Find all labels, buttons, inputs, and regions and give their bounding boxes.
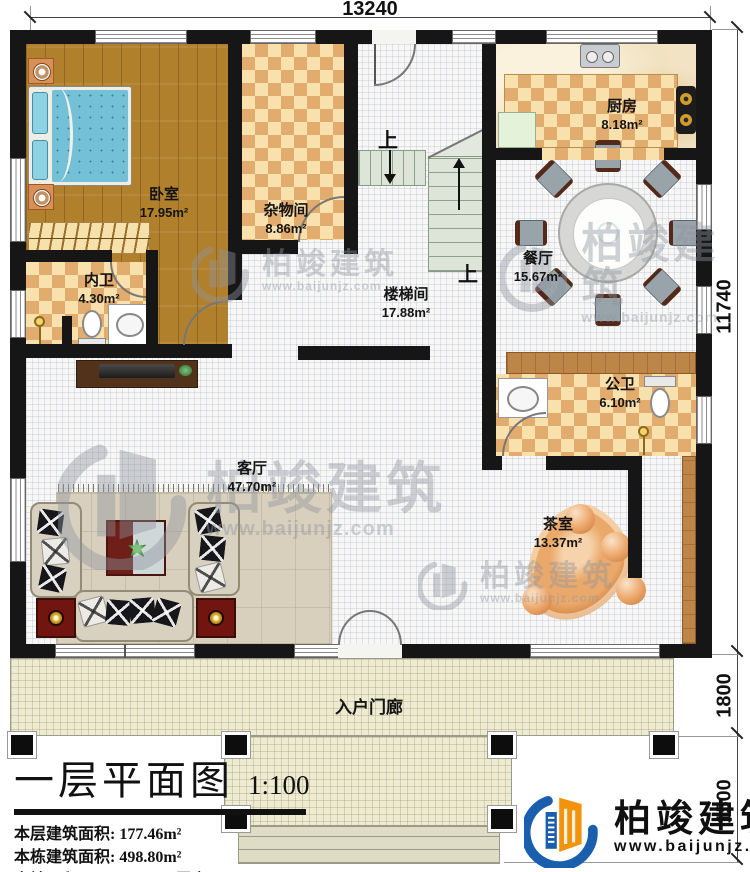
room-label-public-bath: 公卫 6.10m² (565, 376, 675, 411)
info-value: 498.80m² (119, 849, 181, 866)
stair-up-label-2: 上 (458, 258, 478, 287)
door-leaf-top-entry (374, 44, 376, 84)
room-name: 楼梯间 (351, 286, 461, 305)
porch-column (488, 732, 516, 758)
wall-center-vertical (482, 30, 496, 468)
stair-arrow-up-line (458, 168, 460, 210)
company-logo-block: 柏竣建筑 www.baijunjz.com (524, 788, 750, 868)
sofa-cushion (105, 599, 132, 626)
wall-private-bath-top (26, 250, 112, 262)
info-line-1: 本层建筑面积: 177.46m² (14, 823, 310, 846)
window-bedroom-top (95, 30, 187, 44)
stove-burner (680, 114, 692, 126)
room-area: 8.18m² (567, 117, 677, 133)
tv-plant (179, 365, 192, 376)
room-label-private-bath: 内卫 4.30m² (44, 272, 154, 307)
info-label: 本层建筑面积: (14, 826, 115, 843)
bed-pillow (32, 140, 48, 180)
wall-bedroom-right (228, 30, 242, 300)
end-table (36, 598, 76, 638)
room-name: 入户门廊 (309, 697, 429, 718)
room-name: 杂物间 (231, 202, 341, 221)
wardrobe-rail (29, 238, 151, 239)
end-table-lamp (210, 612, 222, 624)
nightstand-lamp (33, 63, 51, 81)
coffee-table (106, 520, 166, 576)
room-area: 6.10m² (565, 395, 675, 411)
room-name: 卧室 (109, 186, 219, 205)
sink-basin (507, 386, 539, 412)
sink-basin (116, 313, 144, 337)
floor-lamp-stem (39, 327, 41, 345)
tea-room-side-deck (682, 456, 696, 644)
door-gap-main-entry (338, 644, 402, 658)
public-bath-counter-wall (506, 352, 696, 374)
nightstand-lamp (33, 189, 51, 207)
wall-kitchen-divider-right (664, 148, 696, 160)
wall-private-bath-stub (62, 316, 72, 344)
window-dining-right-2 (696, 286, 712, 334)
window-stairhall-top (452, 30, 496, 44)
end-table-lamp (50, 612, 62, 624)
tea-stool (522, 585, 552, 615)
company-name: 柏竣建筑 (614, 800, 750, 839)
floor-lamp-stem (643, 437, 645, 455)
room-area: 4.30m² (44, 291, 154, 307)
title-underline (14, 809, 306, 815)
room-name: 餐厅 (483, 250, 593, 269)
room-label-kitchen: 厨房 8.18m² (567, 98, 677, 133)
plan-scale: 1:100 (248, 770, 310, 801)
tv-cabinet (76, 360, 198, 388)
kitchen-opening (542, 148, 664, 160)
window-mullion (124, 644, 126, 658)
title-row: 一层平面图 1:100 (14, 748, 310, 806)
room-area: 17.95m² (109, 205, 219, 221)
bed-pillow (32, 92, 48, 134)
wall-storage-bottom (242, 240, 298, 254)
fridge (498, 112, 536, 148)
window-public-bath-right (696, 396, 712, 444)
floor-lamp (34, 316, 45, 327)
room-name: 茶室 (503, 516, 613, 535)
stair-up-label-1: 上 (378, 124, 398, 153)
window-storage-top (250, 30, 316, 44)
room-area: 8.86m² (231, 221, 341, 237)
wall-outer-right (696, 30, 712, 658)
bed-sheet-curve (44, 88, 73, 182)
toilet-bowl (82, 310, 102, 338)
sink-basin (586, 51, 598, 63)
room-label-stairwell: 楼梯间 17.88m² (351, 286, 461, 321)
room-area: 13.37m² (503, 535, 613, 551)
window-hall-bottom (294, 644, 342, 658)
wall-hall-divider (298, 346, 430, 360)
title-block: 一层平面图 1:100 本层建筑面积: 177.46m² 本栋建筑面积: 498… (14, 748, 310, 872)
door-gap-top-entry (372, 30, 416, 44)
dimension-right-mid: 1800 (714, 668, 737, 724)
sofa-cushion (41, 537, 71, 567)
room-area: 47.70m² (197, 479, 307, 495)
wall-storage-right (344, 30, 358, 254)
sofa-cushion (199, 535, 226, 562)
info-line-2: 本栋建筑面积: 498.80m² (14, 846, 310, 869)
info-lines: 本层建筑面积: 177.46m² 本栋建筑面积: 498.80m² 占地面积: … (14, 823, 310, 872)
window-tea-bottom (530, 644, 660, 658)
stair-arrow-down-head (384, 174, 396, 184)
floor-plan-canvas: 13240 11740 1800 1500 (0, 0, 750, 872)
window-living-left (10, 478, 26, 562)
room-name: 客厅 (197, 460, 307, 479)
room-area: 15.67m² (483, 269, 593, 285)
stair-arrow-up-head (453, 158, 465, 168)
window-private-bath-left (10, 290, 26, 338)
dining-table-center (597, 222, 619, 244)
wall-public-bath-bottom-left (482, 456, 502, 470)
dining-chair (515, 220, 547, 246)
tv-screen (99, 364, 175, 378)
room-name: 厨房 (567, 98, 677, 117)
room-label-tea: 茶室 13.37m² (503, 516, 613, 551)
window-dining-right-1 (696, 184, 712, 230)
company-logo-text: 柏竣建筑 www.baijunjz.com (614, 800, 750, 856)
floor-lamp (638, 426, 649, 437)
right-dim-ext (678, 736, 740, 737)
stair-arrow-down-line (389, 150, 391, 174)
window-bedroom-left (10, 158, 26, 242)
wall-tea-room-left (628, 456, 642, 578)
dimension-top: 13240 (320, 0, 420, 21)
table-plant (127, 539, 147, 559)
room-label-storage: 杂物间 8.86m² (231, 202, 341, 237)
right-dim-ext (712, 29, 740, 30)
room-label-living: 客厅 47.70m² (197, 460, 307, 495)
room-name: 公卫 (565, 376, 675, 395)
room-label-dining: 餐厅 15.67m² (483, 250, 593, 285)
sofa-cushion (36, 508, 64, 536)
wall-bedroom-bottom (26, 344, 232, 358)
sink-basin (602, 51, 614, 63)
end-table (196, 598, 236, 638)
dimension-right-upper: 11740 (714, 272, 737, 342)
info-label: 本栋建筑面积: (14, 849, 115, 866)
sofa-cushion (38, 564, 68, 594)
plan-title: 一层平面图 (14, 748, 234, 806)
company-logo-icon (524, 788, 604, 868)
nightstand (28, 58, 54, 84)
info-value: 177.46m² (119, 826, 181, 843)
right-dimension-line (737, 30, 738, 863)
porch-column (650, 732, 678, 758)
room-area: 17.88m² (351, 305, 461, 321)
window-kitchen-top (546, 30, 658, 44)
company-website: www.baijunjz.com (614, 839, 750, 856)
wall-outer-left (10, 30, 26, 658)
tea-stool (616, 575, 646, 605)
stove-burner (680, 93, 692, 105)
wall-kitchen-divider-left (496, 148, 542, 160)
dining-chair (595, 294, 621, 326)
kitchen-sink (580, 44, 620, 68)
room-label-porch: 入户门廊 (309, 697, 429, 718)
sofa-cushion (194, 506, 223, 535)
porch-column (488, 806, 516, 832)
nightstand (28, 184, 54, 210)
room-label-bedroom: 卧室 17.95m² (109, 186, 219, 221)
stove (676, 86, 696, 134)
room-name: 内卫 (44, 272, 154, 291)
